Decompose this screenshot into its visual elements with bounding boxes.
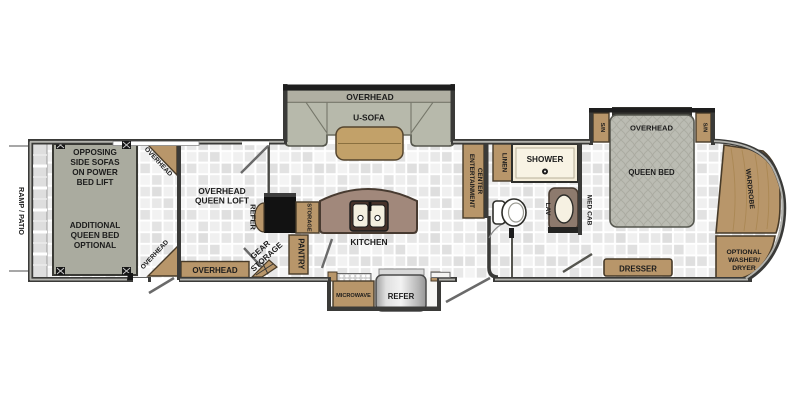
svg-text:QUEEN BED: QUEEN BED: [71, 231, 120, 240]
svg-text:QUEEN LOFT: QUEEN LOFT: [195, 196, 250, 206]
svg-text:KITCHEN: KITCHEN: [350, 237, 387, 247]
svg-text:OPTIONAL: OPTIONAL: [74, 241, 116, 250]
svg-text:U-SOFA: U-SOFA: [353, 113, 385, 123]
svg-text:WASHER/: WASHER/: [728, 257, 760, 264]
svg-text:ADDITIONAL: ADDITIONAL: [70, 221, 120, 230]
svg-text:DRYER: DRYER: [732, 265, 756, 272]
svg-text:ENTERTAINMENT: ENTERTAINMENT: [468, 154, 475, 208]
svg-text:SHOWER: SHOWER: [527, 155, 564, 164]
svg-text:DRESSER: DRESSER: [619, 265, 657, 274]
svg-text:S/N: S/N: [599, 123, 605, 133]
svg-text:REFER: REFER: [249, 204, 258, 230]
svg-text:BED LIFT: BED LIFT: [77, 178, 114, 187]
svg-text:STORAGE: STORAGE: [306, 203, 312, 232]
svg-text:PANTRY: PANTRY: [297, 238, 306, 270]
svg-text:OVERHEAD: OVERHEAD: [192, 266, 238, 275]
svg-text:MED CAB: MED CAB: [586, 195, 593, 226]
svg-text:OPTIONAL: OPTIONAL: [726, 249, 761, 256]
svg-text:OVERHEAD: OVERHEAD: [346, 92, 393, 102]
svg-text:ON POWER: ON POWER: [72, 168, 118, 177]
svg-text:LAV: LAV: [544, 203, 551, 216]
svg-text:OVERHEAD: OVERHEAD: [630, 124, 674, 133]
svg-text:LINEN: LINEN: [501, 153, 508, 173]
svg-text:CENTER: CENTER: [476, 168, 483, 195]
svg-text:OVERHEAD: OVERHEAD: [198, 186, 245, 196]
svg-text:QUEEN BED: QUEEN BED: [628, 168, 675, 177]
svg-text:REFER: REFER: [388, 292, 415, 301]
svg-text:OPPOSING: OPPOSING: [73, 148, 117, 157]
svg-text:SIDE SOFAS: SIDE SOFAS: [70, 158, 120, 167]
svg-text:MICROWAVE: MICROWAVE: [336, 293, 371, 299]
svg-text:S/N: S/N: [702, 123, 708, 133]
svg-text:RAMP / PATIO: RAMP / PATIO: [17, 187, 26, 235]
